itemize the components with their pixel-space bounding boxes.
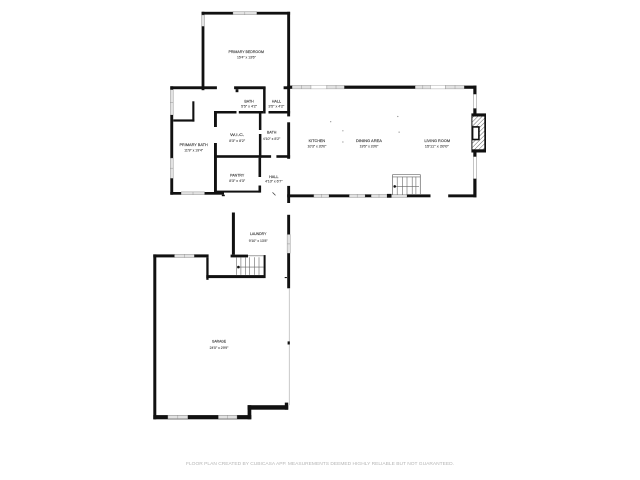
- svg-text:DINING AREA: DINING AREA: [356, 138, 382, 143]
- svg-text:24'5" x 29'9": 24'5" x 29'9": [210, 346, 229, 350]
- svg-text:FLOOR PLAN CREATED BY CUBICASA: FLOOR PLAN CREATED BY CUBICASA APP. MEAS…: [186, 461, 454, 467]
- svg-text:15'11" x 20'0": 15'11" x 20'0": [425, 144, 450, 148]
- svg-text:LAUNDRY: LAUNDRY: [250, 231, 267, 236]
- svg-text:11'9" x 19'4": 11'9" x 19'4": [184, 149, 203, 153]
- svg-text:PRIMARY BEDROOM: PRIMARY BEDROOM: [229, 49, 264, 54]
- svg-text:LIVING ROOM: LIVING ROOM: [424, 138, 450, 143]
- svg-text:15'4" x 13'6": 15'4" x 13'6": [237, 56, 256, 60]
- svg-text:GARAGE: GARAGE: [212, 338, 226, 343]
- svg-text:HALL: HALL: [269, 174, 279, 179]
- svg-text:PRIMARY BATH: PRIMARY BATH: [179, 142, 207, 147]
- svg-text:19'5" x 20'0": 19'5" x 20'0": [360, 144, 379, 148]
- svg-text:10'3" x 20'0": 10'3" x 20'0": [308, 144, 327, 148]
- svg-text:9'10" x 13'8": 9'10" x 13'8": [249, 239, 268, 243]
- svg-text:KITCHEN: KITCHEN: [309, 138, 326, 143]
- svg-text:4'10" x 6'7": 4'10" x 6'7": [265, 180, 283, 184]
- svg-text:4'10" x 8'2": 4'10" x 8'2": [263, 137, 281, 141]
- svg-text:8'3" x 4'3": 8'3" x 4'3": [229, 179, 246, 183]
- svg-text:3'5" x 4'2": 3'5" x 4'2": [268, 105, 285, 109]
- svg-text:PANTRY: PANTRY: [230, 173, 244, 178]
- svg-text:W.I.C.: W.I.C.: [230, 132, 244, 137]
- svg-text:BATH: BATH: [244, 98, 253, 103]
- svg-text:HALL: HALL: [272, 98, 282, 103]
- svg-text:8'3" x 8'2": 8'3" x 8'2": [229, 139, 246, 143]
- svg-text:5'5" x 4'2": 5'5" x 4'2": [241, 105, 258, 109]
- svg-text:BATH: BATH: [267, 130, 276, 135]
